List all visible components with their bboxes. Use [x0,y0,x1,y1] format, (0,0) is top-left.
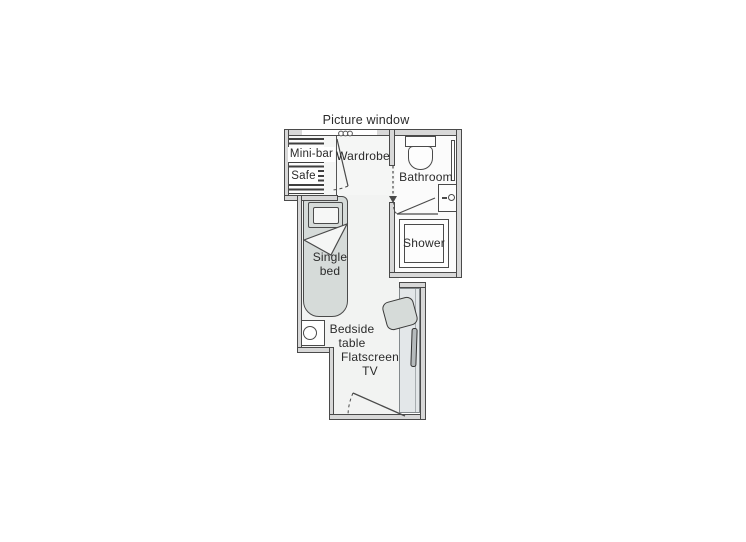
lower-left-wall [329,347,334,420]
minibar-label: Mini-bar [288,147,335,162]
closet-left-wall [284,129,289,201]
toilet-bowl-icon [408,146,433,170]
bottom-wall [329,414,426,420]
bedside-table-circle-icon [303,326,317,340]
closet-bottom-wall [284,195,338,201]
faucet-icon [448,194,455,201]
bathroom-label: Bathroom [396,171,456,185]
right-wall [456,129,462,278]
faucet-handle-icon [442,197,447,199]
wardrobe-label: Wardrobe [332,150,394,164]
bedside-table-label: Bedside table [326,323,378,350]
pillow [313,207,339,224]
bathroom-left-wall-lower [389,202,395,278]
flatscreen-tv-label: Flatscreen TV [341,351,399,378]
bathroom-bottom-wall [389,272,462,278]
floorplan-canvas: Picture window Mini-bar Safe Wardrobe Ba… [0,0,746,542]
left-wall [297,195,302,353]
lower-right-top-wall [399,282,426,288]
picture-window-label: Picture window [320,114,412,128]
safe-label: Safe [289,169,318,184]
lower-right-wall [420,282,426,420]
single-bed-label: Single bed [306,251,354,278]
shower-label: Shower [400,237,448,251]
picture-window-glazing [302,129,377,136]
closet-divider-wall [336,136,337,195]
